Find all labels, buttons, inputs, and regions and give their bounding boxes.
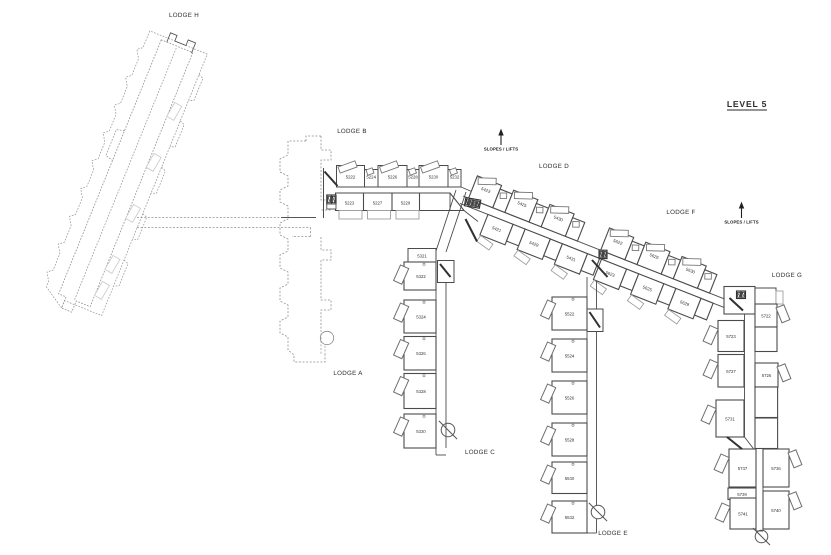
svg-text:LODGE A: LODGE A — [333, 370, 363, 377]
svg-text:5229: 5229 — [401, 201, 411, 206]
svg-text:5736: 5736 — [771, 466, 781, 471]
svg-text:5532: 5532 — [565, 515, 575, 520]
svg-text:5530: 5530 — [565, 476, 575, 481]
svg-text:SLOPES / LIFTS: SLOPES / LIFTS — [484, 147, 518, 152]
svg-text:5326: 5326 — [416, 351, 426, 356]
svg-text:5722: 5722 — [761, 314, 771, 319]
svg-text:LODGE G: LODGE G — [772, 272, 802, 279]
svg-text:5330: 5330 — [416, 429, 426, 434]
svg-text:5526: 5526 — [565, 396, 575, 401]
svg-text:5524: 5524 — [565, 354, 575, 359]
svg-text:5726: 5726 — [762, 373, 772, 378]
svg-text:5727: 5727 — [726, 369, 736, 374]
svg-text:5324: 5324 — [416, 315, 426, 320]
svg-text:LEVEL 5: LEVEL 5 — [727, 99, 767, 109]
svg-text:5228: 5228 — [408, 174, 418, 179]
svg-text:LODGE E: LODGE E — [598, 530, 628, 537]
svg-text:5222: 5222 — [346, 174, 356, 179]
svg-text:LODGE B: LODGE B — [337, 128, 367, 135]
svg-text:5328: 5328 — [416, 389, 426, 394]
svg-text:5227: 5227 — [373, 201, 383, 206]
svg-text:LODGE H: LODGE H — [169, 12, 199, 19]
svg-text:5322: 5322 — [416, 274, 426, 279]
svg-text:5223: 5223 — [345, 201, 355, 206]
svg-text:SLOPES / LIFTS: SLOPES / LIFTS — [724, 220, 758, 225]
svg-text:5739: 5739 — [737, 492, 747, 497]
svg-text:LODGE C: LODGE C — [465, 449, 495, 456]
svg-text:LODGE D: LODGE D — [539, 163, 569, 170]
svg-text:5737: 5737 — [738, 466, 748, 471]
svg-text:5741: 5741 — [738, 512, 748, 517]
svg-text:5528: 5528 — [565, 438, 575, 443]
svg-text:5731: 5731 — [725, 417, 735, 422]
svg-text:LODGE F: LODGE F — [666, 209, 695, 216]
svg-text:5740: 5740 — [771, 508, 781, 513]
svg-text:5522: 5522 — [565, 312, 575, 317]
svg-text:5226: 5226 — [388, 174, 398, 179]
svg-text:5723: 5723 — [726, 334, 736, 339]
svg-text:5321: 5321 — [417, 254, 427, 259]
svg-text:5230: 5230 — [429, 174, 439, 179]
